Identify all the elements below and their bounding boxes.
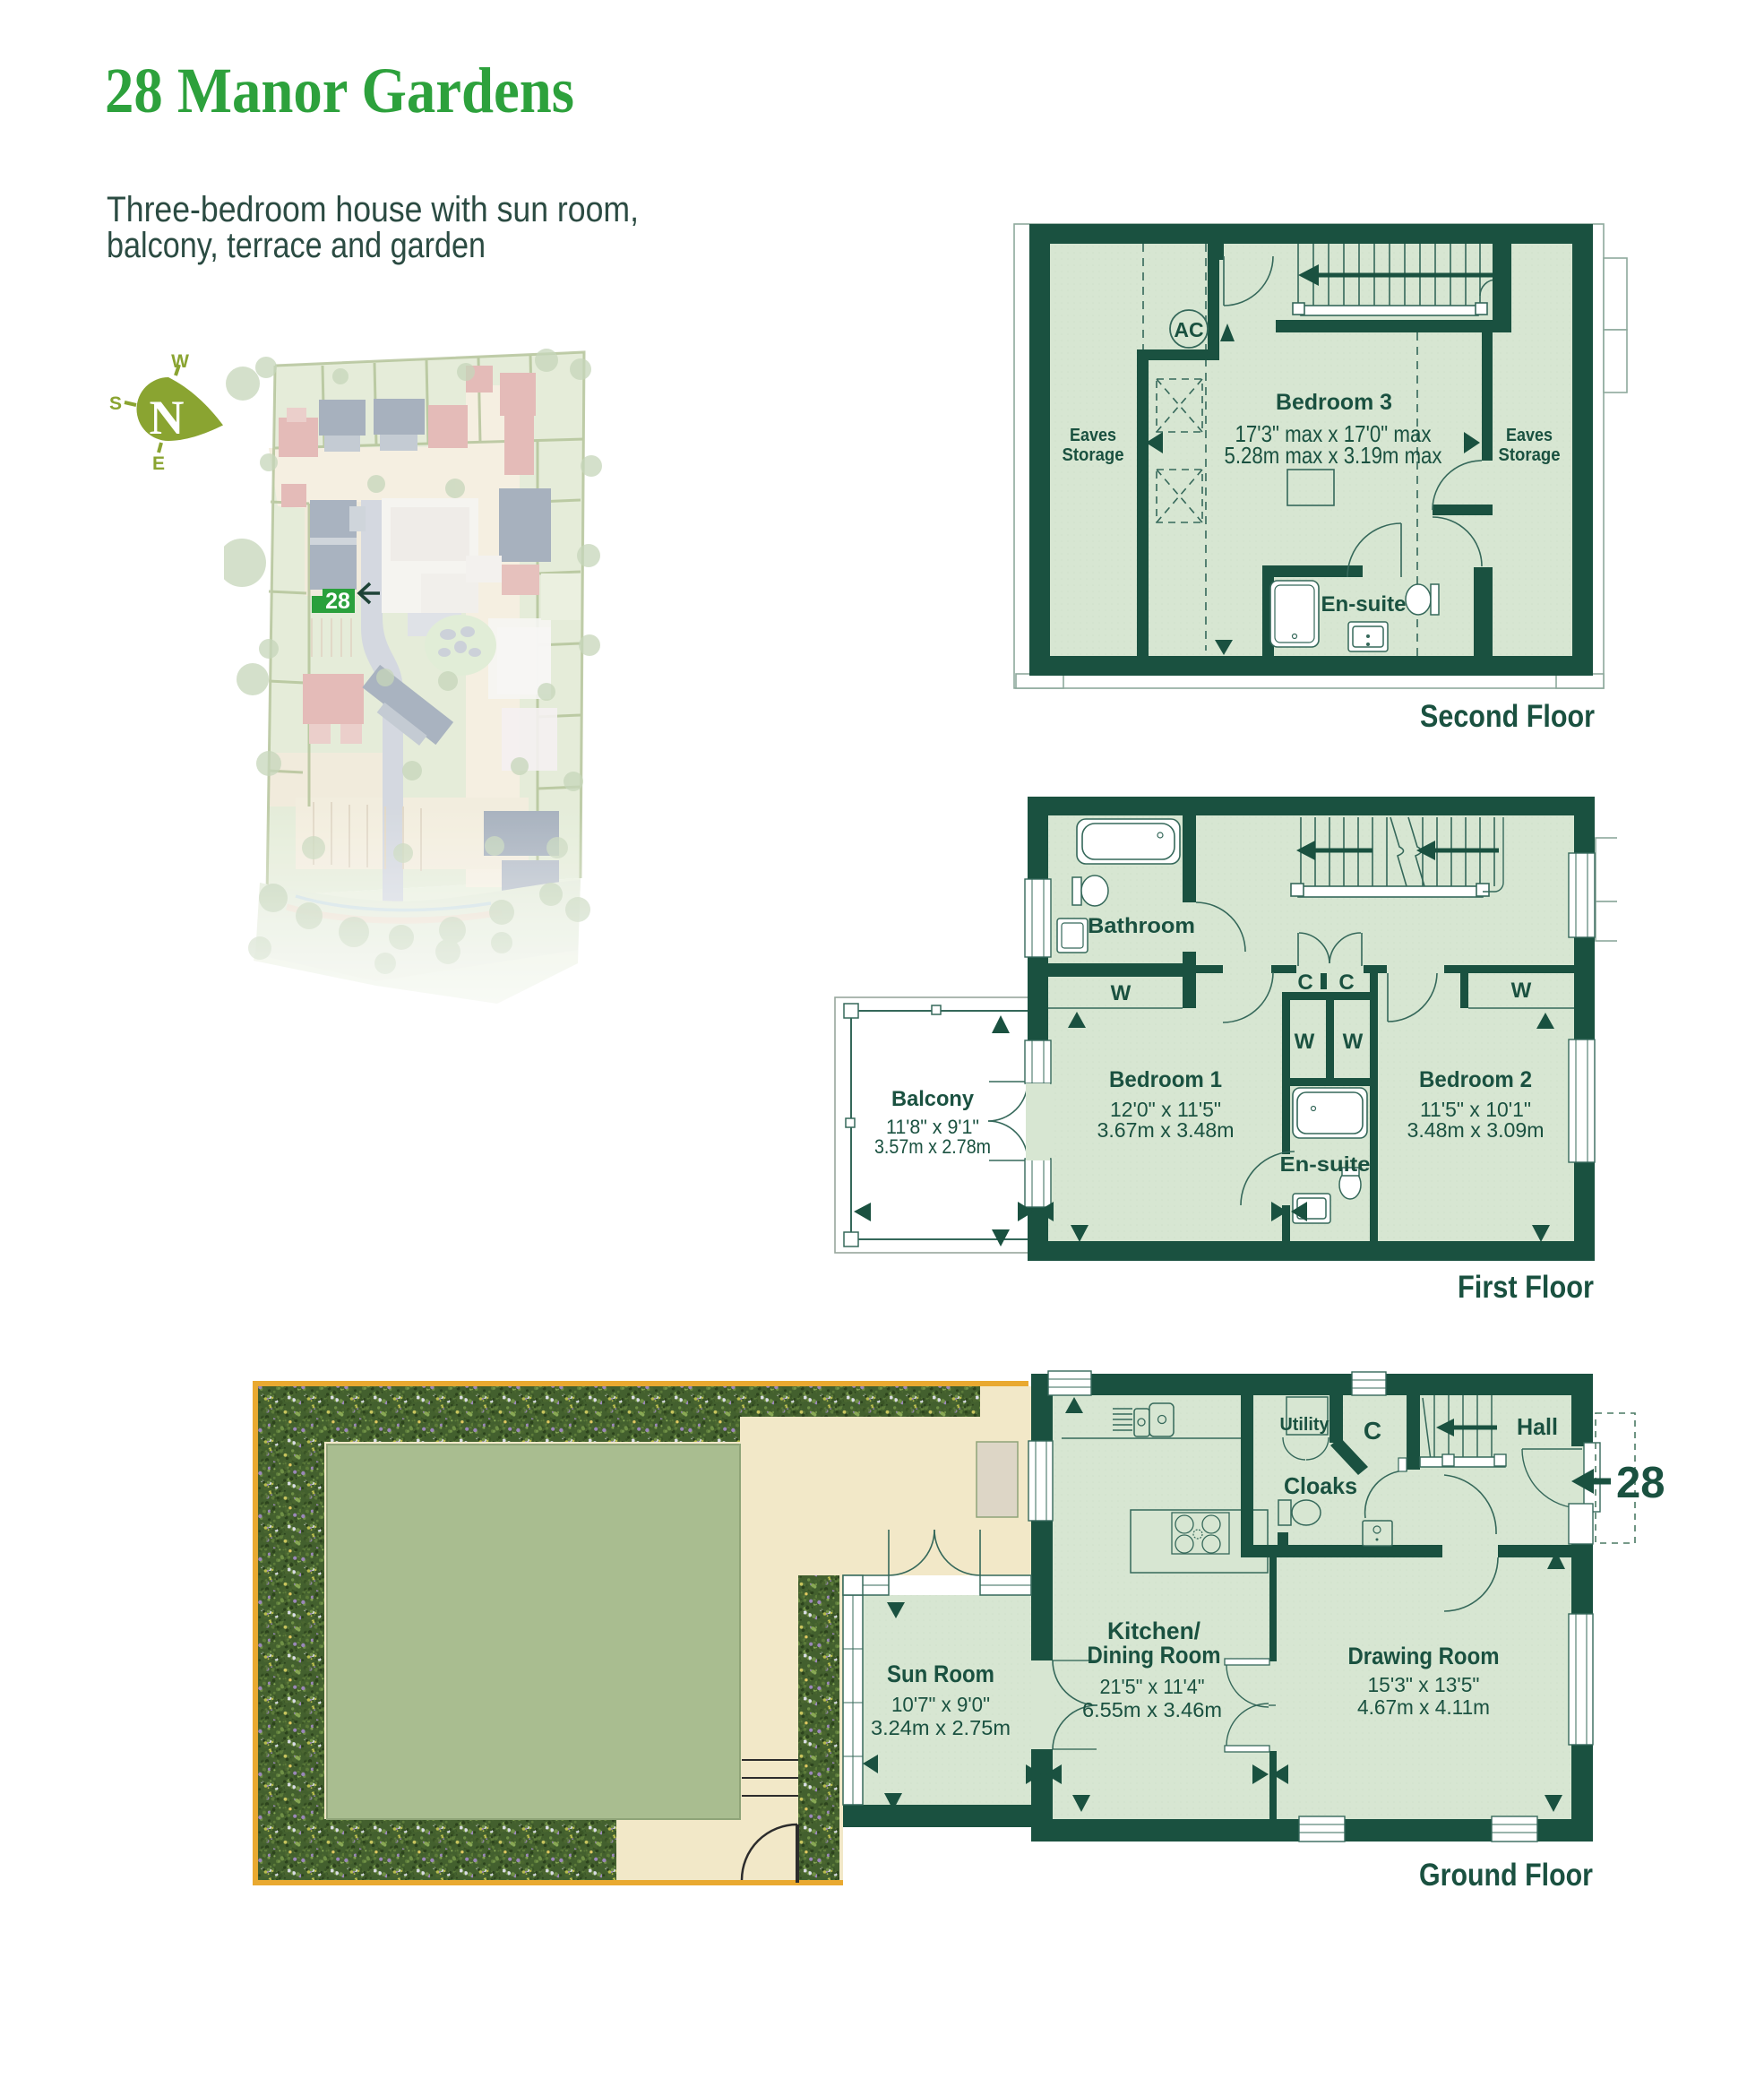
- svg-text:C: C: [1338, 970, 1354, 995]
- svg-text:Ground Floor: Ground Floor: [1419, 1858, 1593, 1893]
- svg-text:Bathroom: Bathroom: [1088, 914, 1195, 938]
- svg-text:Three-bedroom house with sun r: Three-bedroom house with sun room,: [107, 190, 639, 229]
- svg-text:5.28m max x 3.19m max: 5.28m max x 3.19m max: [1225, 442, 1442, 469]
- svg-text:En-suite: En-suite: [1321, 592, 1407, 617]
- svg-text:Eaves: Eaves: [1070, 426, 1116, 445]
- svg-text:Sun Room: Sun Room: [887, 1660, 994, 1687]
- svg-text:4.67m x 4.11m: 4.67m x 4.11m: [1357, 1695, 1490, 1719]
- svg-text:Bedroom 3: Bedroom 3: [1276, 390, 1392, 415]
- svg-text:S: S: [109, 393, 122, 414]
- svg-text:W: W: [1511, 979, 1532, 1003]
- svg-text:28 Manor Gardens: 28 Manor Gardens: [105, 55, 574, 126]
- svg-text:First Floor: First Floor: [1458, 1270, 1594, 1305]
- svg-text:Dining Room: Dining Room: [1088, 1642, 1221, 1669]
- svg-text:C: C: [1297, 970, 1312, 995]
- svg-text:balcony, terrace and garden: balcony, terrace and garden: [107, 226, 486, 265]
- svg-text:Eaves: Eaves: [1506, 426, 1553, 445]
- svg-text:Storage: Storage: [1063, 445, 1124, 465]
- svg-text:3.57m x 2.78m: 3.57m x 2.78m: [874, 1135, 991, 1158]
- svg-text:W: W: [1111, 981, 1132, 1005]
- svg-text:E: E: [152, 453, 165, 474]
- svg-text:Bedroom 1: Bedroom 1: [1109, 1067, 1222, 1092]
- svg-text:Hall: Hall: [1517, 1413, 1558, 1440]
- svg-text:W: W: [171, 351, 189, 372]
- svg-text:Cloaks: Cloaks: [1284, 1472, 1357, 1499]
- svg-text:N: N: [150, 391, 185, 444]
- svg-text:AC: AC: [1174, 318, 1203, 341]
- svg-text:15'3" x 13'5": 15'3" x 13'5": [1368, 1673, 1480, 1696]
- svg-text:W: W: [1295, 1030, 1315, 1054]
- svg-text:3.24m x 2.75m: 3.24m x 2.75m: [871, 1716, 1011, 1739]
- svg-text:Storage: Storage: [1499, 445, 1561, 465]
- svg-text:10'7" x 9'0": 10'7" x 9'0": [891, 1693, 990, 1716]
- svg-text:Drawing Room: Drawing Room: [1348, 1643, 1500, 1669]
- svg-text:28: 28: [1616, 1459, 1665, 1507]
- svg-text:Bedroom 2: Bedroom 2: [1419, 1067, 1532, 1092]
- svg-text:28: 28: [325, 589, 350, 614]
- svg-text:21'5" x 11'4": 21'5" x 11'4": [1100, 1675, 1205, 1698]
- svg-text:Second Floor: Second Floor: [1420, 699, 1595, 734]
- svg-text:En-suite: En-suite: [1280, 1152, 1371, 1176]
- svg-text:6.55m x 3.46m: 6.55m x 3.46m: [1082, 1698, 1222, 1721]
- svg-text:Utility: Utility: [1280, 1415, 1330, 1435]
- svg-text:Balcony: Balcony: [891, 1087, 975, 1111]
- svg-text:W: W: [1343, 1030, 1364, 1054]
- svg-text:3.67m x 3.48m: 3.67m x 3.48m: [1097, 1118, 1235, 1142]
- svg-text:3.48m x 3.09m: 3.48m x 3.09m: [1407, 1118, 1545, 1142]
- svg-text:C: C: [1364, 1417, 1381, 1445]
- svg-text:Kitchen/: Kitchen/: [1107, 1617, 1200, 1644]
